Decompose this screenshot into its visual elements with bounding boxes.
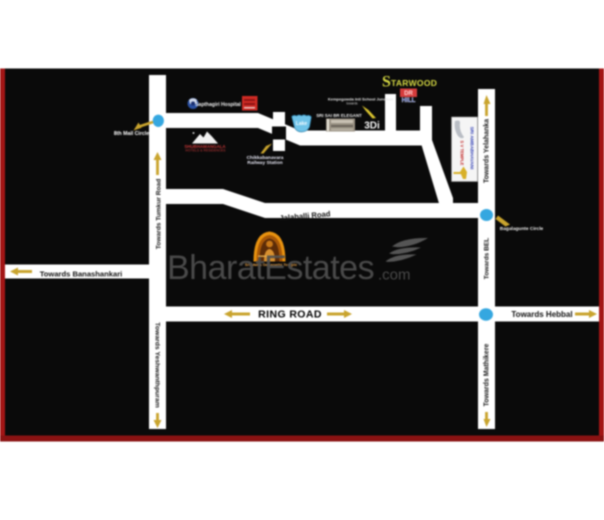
svg-text:BharatEstates: BharatEstates [167,249,374,287]
svg-text:towards: towards [346,101,358,105]
svg-text:Bagalagunte Circle: Bagalagunte Circle [500,226,544,232]
svg-text:Towards BEL: Towards BEL [483,238,490,280]
svg-text:Towards Yelahanka: Towards Yelahanka [484,119,491,183]
svg-text:Lake: Lake [296,121,308,127]
svg-text:Towards Yeshwanthpuram: Towards Yeshwanthpuram [154,322,161,408]
svg-text:3Di: 3Di [364,121,380,132]
svg-text:Towards Tumkur Road: Towards Tumkur Road [155,179,162,249]
svg-text:Towards Banashankari: Towards Banashankari [40,270,123,279]
svg-text:8th Mail Circle: 8th Mail Circle [114,131,149,137]
svg-text:Railway Station: Railway Station [247,160,283,166]
svg-text:DR: DR [404,91,413,97]
svg-text:SRI SAI BR ELEGANT: SRI SAI BR ELEGANT [316,113,362,118]
svg-text:Towards Hebbal: Towards Hebbal [511,310,572,319]
svg-text:Towards Mathikere: Towards Mathikere [483,343,490,406]
svg-text:.com: .com [378,267,411,284]
svg-text:HOTELS & RESIDENCES: HOTELS & RESIDENCES [185,148,226,152]
svg-text:HILL: HILL [402,97,416,104]
svg-text:RING ROAD: RING ROAD [258,308,322,320]
svg-text:Sapthagiri Hospital: Sapthagiri Hospital [195,102,241,108]
svg-text:SRI AMBABHAVANI: SRI AMBABHAVANI [469,127,474,170]
svg-text:Chikkabanavara: Chikkabanavara [247,155,284,161]
svg-text:S V TEMPLE: S V TEMPLE [459,141,464,166]
svg-text:Kempegowda Intl School Junctio: Kempegowda Intl School Junction [328,97,394,102]
svg-text:TARWOOD: TARWOOD [391,78,437,88]
svg-text:S: S [382,74,391,91]
